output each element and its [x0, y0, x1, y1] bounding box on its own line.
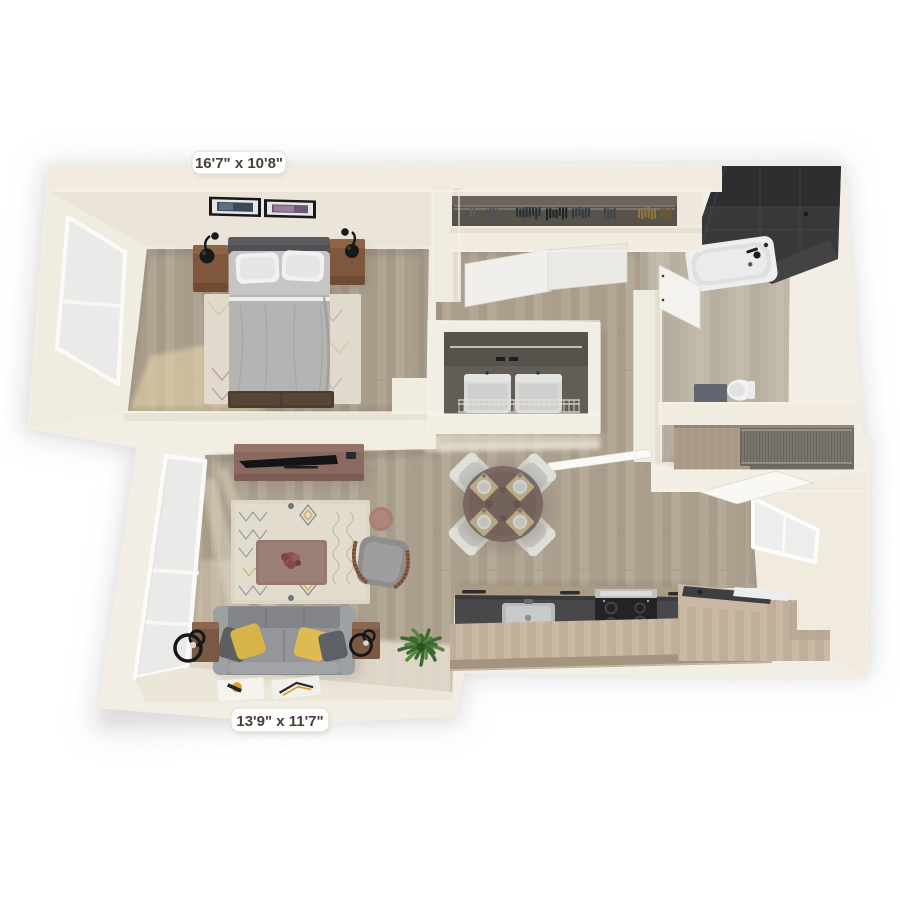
svg-text:13'9" x 11'7": 13'9" x 11'7"	[236, 713, 323, 730]
svg-text:16'7" x 10'8": 16'7" x 10'8"	[195, 155, 283, 172]
